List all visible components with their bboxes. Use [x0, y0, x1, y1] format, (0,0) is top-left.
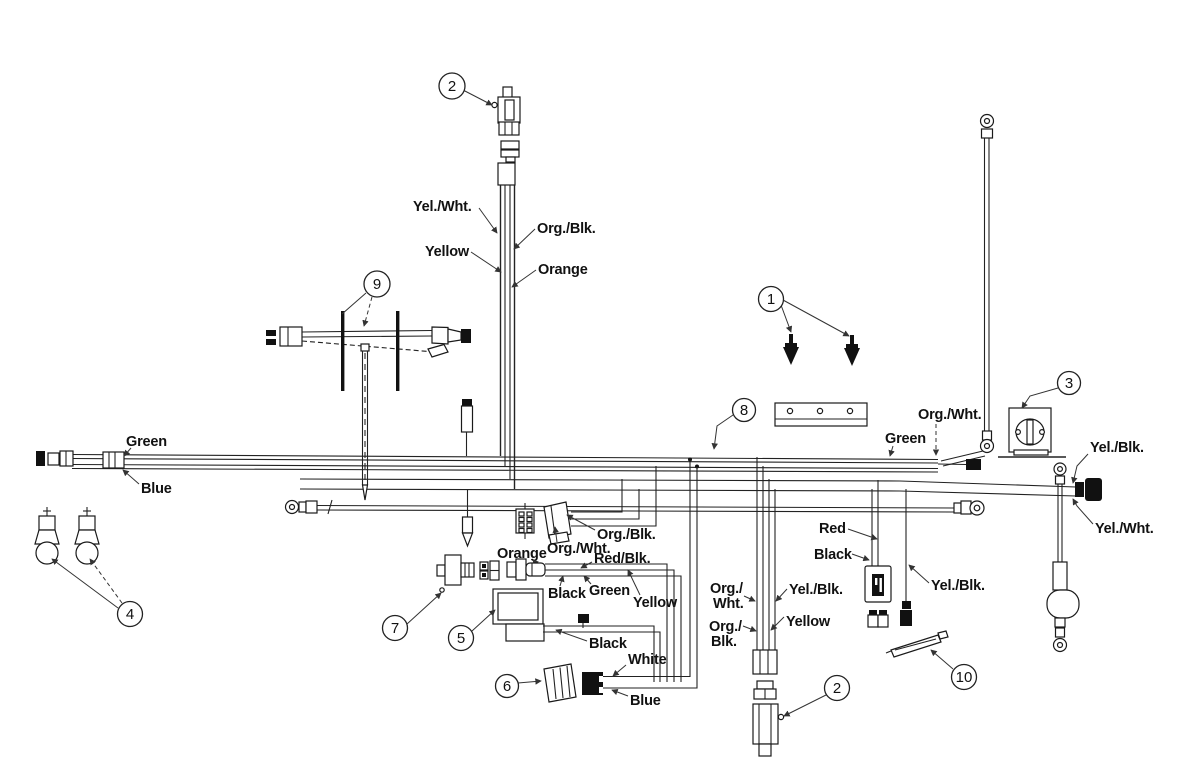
solenoid [998, 408, 1066, 457]
push-clip-fasteners [783, 334, 860, 366]
label-top-org-blk: Org./Blk. [537, 221, 596, 237]
callout-5-number: 5 [457, 630, 465, 647]
callout-2-top: 2 [439, 73, 492, 105]
spade-terminal-up [462, 399, 473, 456]
callout-10: 10 [931, 650, 977, 690]
callout-10-number: 10 [956, 669, 973, 686]
diode-wire-right [1047, 463, 1079, 652]
label-left-blue: Blue [141, 481, 172, 497]
label-top-yellow: Yellow [425, 244, 470, 260]
tube-item-10 [886, 631, 948, 657]
label-top-yel-wht: Yel./Wht. [413, 199, 472, 215]
callout-2-bottom-number: 2 [833, 680, 841, 697]
top-wire-labels: Yel./Wht. Org./Blk. Yellow Orange [413, 199, 596, 287]
callout-9: 9 [342, 271, 390, 326]
left-end-connector [36, 451, 124, 468]
label-left-green: Green [126, 434, 167, 450]
engine-bundle-labels: Org./ Wht. Org./ Blk. Yel./Blk. Yellow [709, 581, 843, 650]
callout-5: 5 [449, 610, 496, 651]
callout-2-bottom: 2 [784, 676, 850, 717]
label-top-orange: Orange [538, 262, 588, 278]
label-plug-yel-blk: Yel./Blk. [1090, 440, 1144, 456]
label-mid-red-blk: Red/Blk. [594, 551, 651, 567]
label-eng-org-wht-2: Wht. [713, 596, 744, 612]
wiring-diagram-page: 2 Yel./Wht. Org./Blk. Yellow Orange [0, 0, 1200, 778]
callout-2-top-number: 2 [448, 78, 456, 95]
main-harness-trunk-wires [72, 455, 1076, 515]
spark-plug-cap-bottom [753, 704, 784, 756]
callout-4-number: 4 [126, 606, 134, 623]
callout-3-number: 3 [1065, 375, 1073, 392]
callout-7-number: 7 [391, 620, 399, 637]
callout-1-number: 1 [767, 291, 775, 308]
label-eng-yel-blk: Yel./Blk. [789, 582, 843, 598]
ignition-switch [437, 555, 474, 592]
callout-4: 4 [52, 559, 143, 627]
label-module-black: Black [589, 636, 628, 652]
right-end-plug [1075, 478, 1102, 501]
label-fuse-black: Black [814, 547, 853, 563]
label-diode-yel-blk: Yel./Blk. [931, 578, 985, 594]
label-eng-org-wht-1: Org./ [710, 581, 743, 597]
engine-wire-bundle [753, 457, 777, 699]
spade-pair-connector [480, 561, 499, 580]
callout-6: 6 [496, 675, 542, 698]
label-conn6-blue: Blue [630, 693, 661, 709]
label-eng-org-blk-1: Org./ [709, 619, 742, 635]
label-plug-yel-wht: Yel./Wht. [1095, 521, 1154, 537]
left-wire-labels: Green Blue [123, 434, 172, 497]
callout-8: 8 [714, 399, 756, 450]
label-mid-yellow: Yellow [633, 595, 678, 611]
label-eng-yellow: Yellow [786, 614, 831, 630]
harness-assembly-9 [266, 311, 471, 500]
spade-terminal-down [463, 489, 473, 546]
fuse-holder [865, 480, 891, 627]
callout-7: 7 [383, 593, 442, 641]
callout-6-number: 6 [503, 678, 511, 695]
wire-conduit-top [498, 163, 515, 489]
callout-1: 1 [759, 287, 850, 337]
yel-blk-drop-wire [900, 489, 912, 626]
light-bulbs [35, 507, 99, 564]
label-mid-green: Green [589, 583, 630, 599]
label-fuse-red: Red [819, 521, 846, 537]
label-conn6-white: White [628, 652, 667, 668]
callout-8-number: 8 [740, 402, 748, 419]
label-mid-black: Black [548, 586, 587, 602]
label-eng-org-blk-2: Blk. [711, 634, 737, 650]
callout-3: 3 [1022, 372, 1081, 409]
label-harness-green: Green [885, 431, 926, 447]
harness-right-labels: Org./Wht. Green [885, 407, 982, 456]
spark-plug-cap-top [492, 87, 520, 162]
label-harness-org-wht: Org./Wht. [918, 407, 982, 423]
callout-9-number: 9 [373, 276, 381, 293]
pin-block-connector [516, 503, 534, 539]
bulb-left [35, 507, 59, 564]
wiring-diagram: 2 Yel./Wht. Org./Blk. Yellow Orange [0, 0, 1200, 778]
bulb-right [75, 507, 99, 564]
mounting-bracket [775, 403, 867, 426]
